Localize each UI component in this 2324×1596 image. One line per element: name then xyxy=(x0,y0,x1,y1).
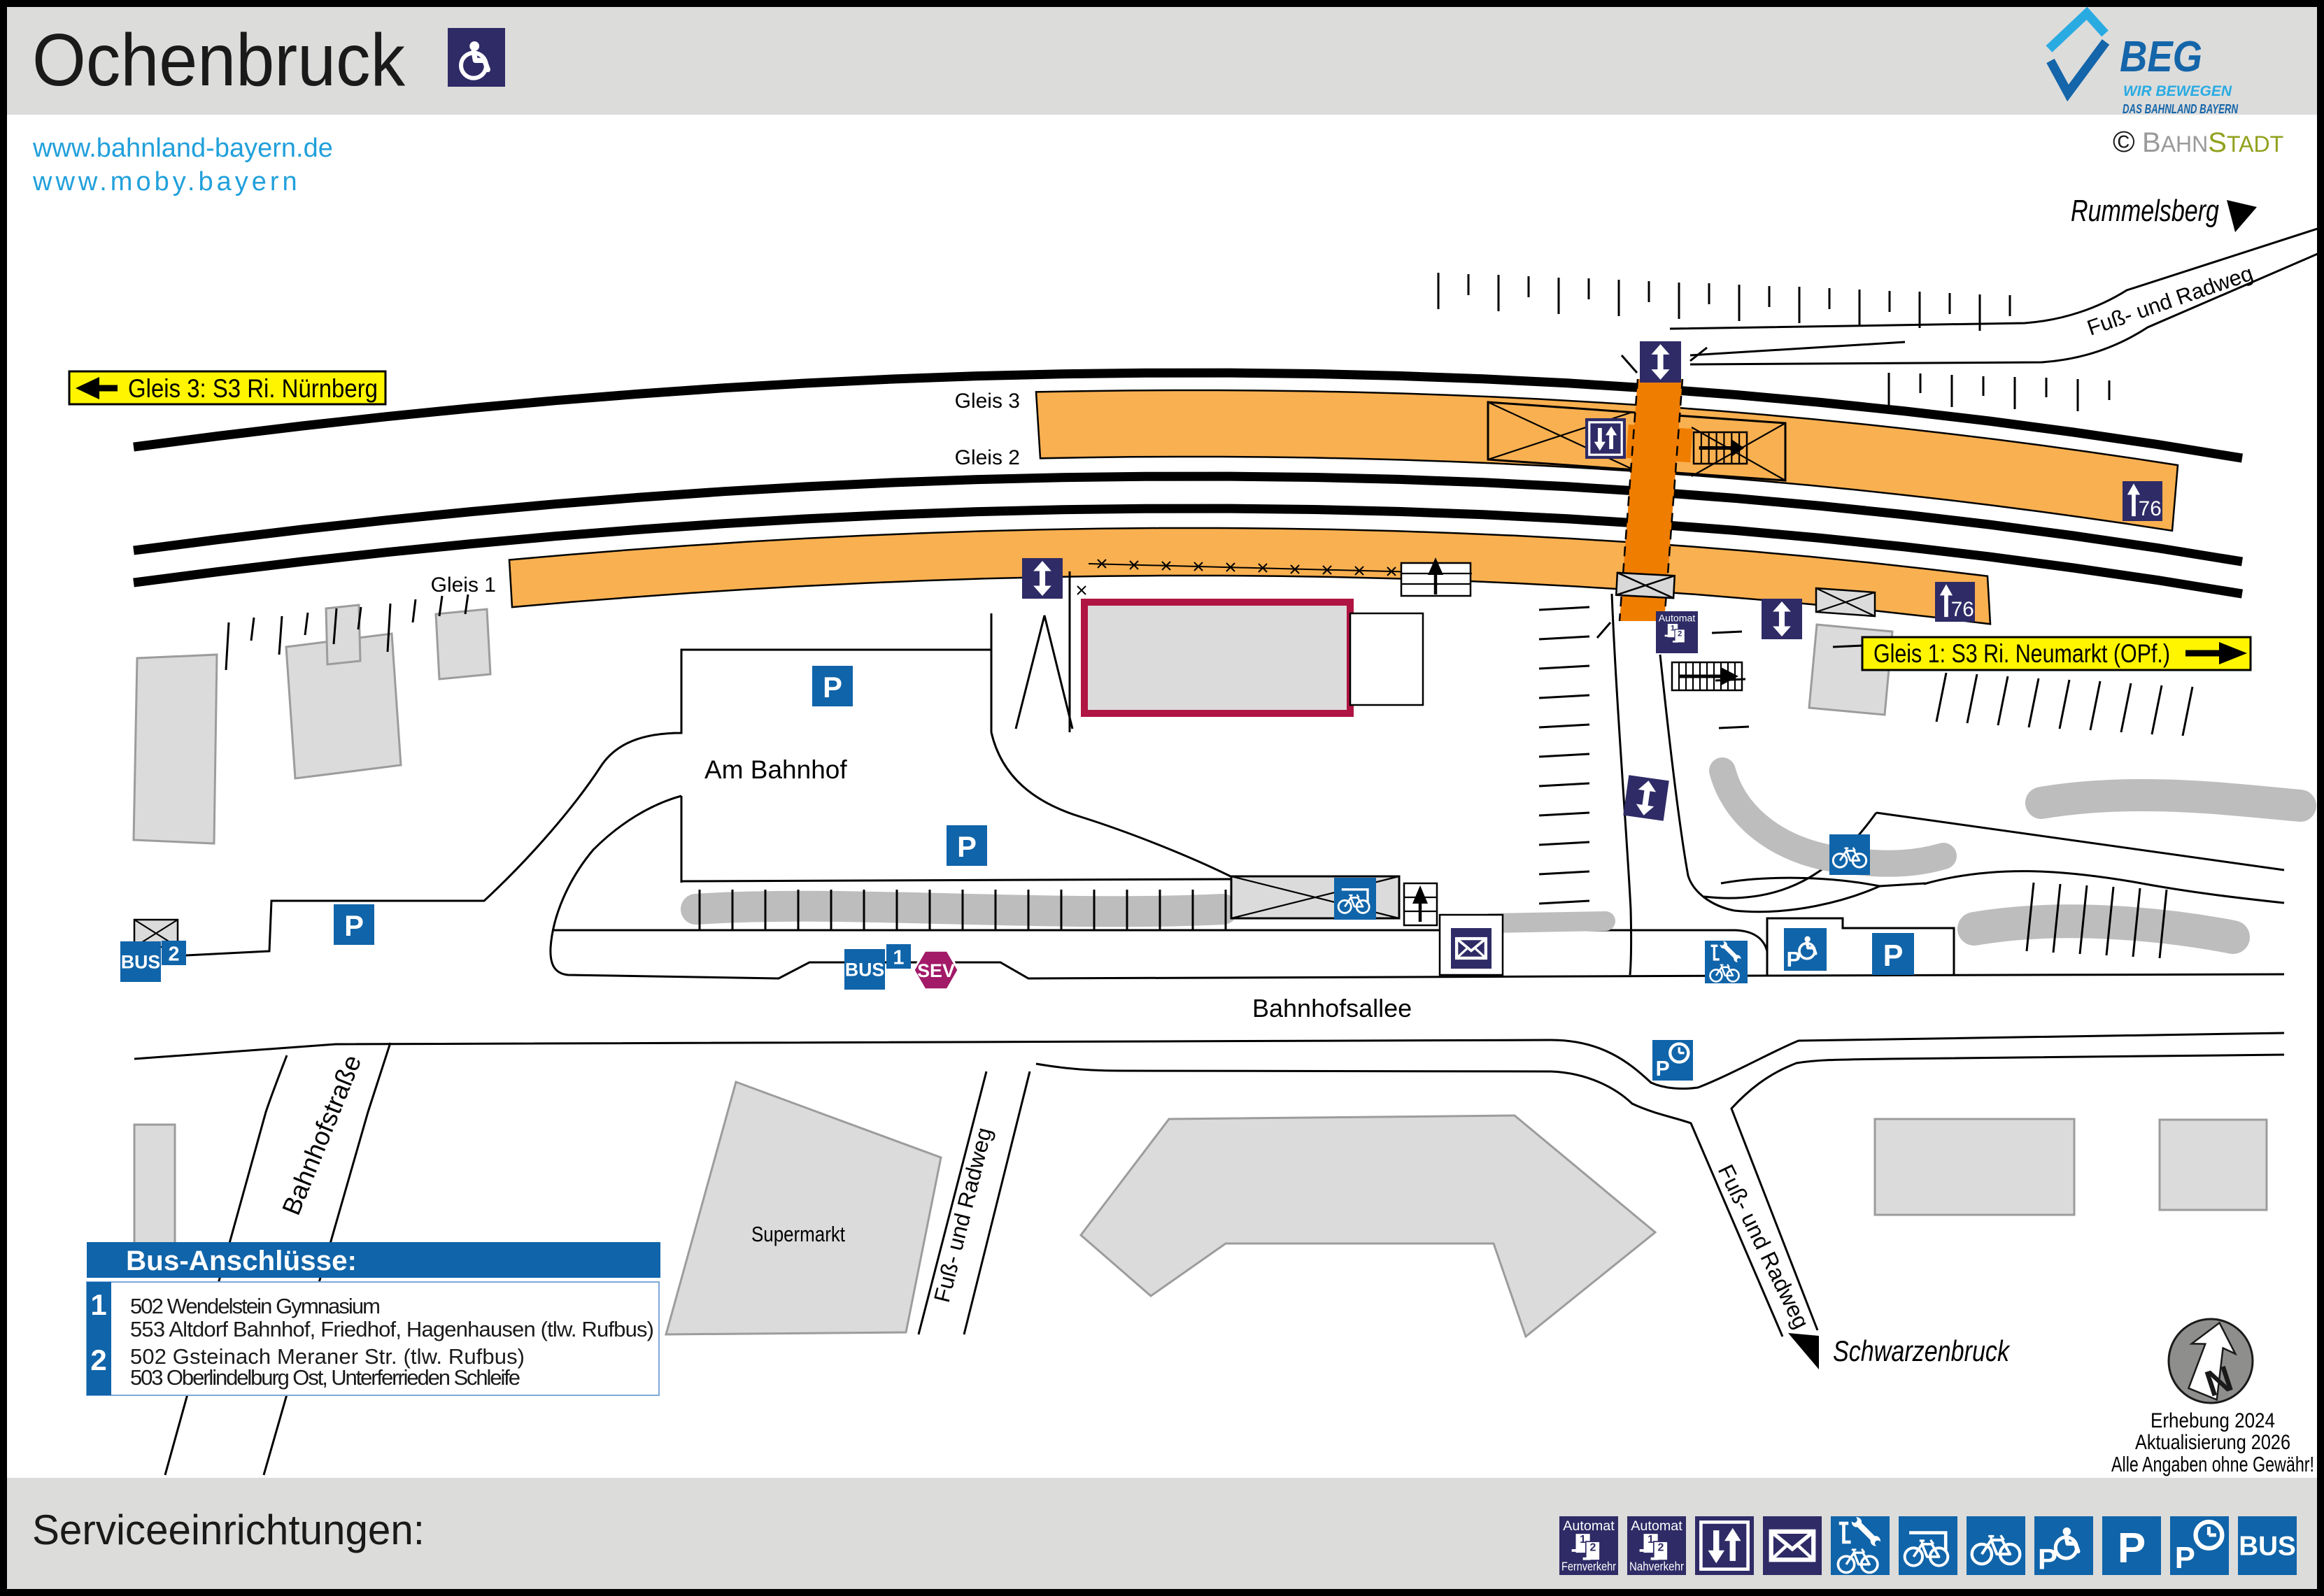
svg-text:1: 1 xyxy=(90,1288,106,1321)
svg-text:SEV: SEV xyxy=(917,960,955,981)
svg-text:P: P xyxy=(344,909,364,942)
svg-text:Bus-Anschlüsse:: Bus-Anschlüsse: xyxy=(126,1246,357,1276)
svg-text:Gleis 3: S3 Ri. Nürnberg: Gleis 3: S3 Ri. Nürnberg xyxy=(128,374,378,403)
svg-text:©: © xyxy=(2113,125,2135,159)
svg-text:Ochenbruck: Ochenbruck xyxy=(32,19,406,101)
svg-text:BAHNSTADT: BAHNSTADT xyxy=(2142,127,2283,158)
svg-text:Rummelsberg: Rummelsberg xyxy=(2071,194,2219,228)
svg-text:Nahverkehr: Nahverkehr xyxy=(1629,1559,1684,1573)
svg-text:Automat: Automat xyxy=(1563,1518,1615,1534)
svg-text:DAS BAHNLAND BAYERN: DAS BAHNLAND BAYERN xyxy=(2123,102,2239,116)
svg-text:P: P xyxy=(2175,1541,2195,1575)
svg-text:2: 2 xyxy=(1589,1542,1596,1554)
svg-text:Alle Angaben ohne Gewähr!: Alle Angaben ohne Gewähr! xyxy=(2111,1452,2314,1476)
svg-text:76: 76 xyxy=(1951,598,1974,621)
svg-text:Schwarzenbruck: Schwarzenbruck xyxy=(1833,1334,2011,1367)
svg-text:Fernverkehr: Fernverkehr xyxy=(1561,1559,1616,1573)
svg-text:Automat: Automat xyxy=(1631,1518,1682,1534)
svg-text:1: 1 xyxy=(893,947,905,969)
svg-text:2: 2 xyxy=(90,1344,106,1376)
svg-text:Bahnhofsallee: Bahnhofsallee xyxy=(1252,994,1412,1023)
svg-text:P: P xyxy=(1883,939,1904,973)
svg-text:503 Oberlindelburg Ost, Unterf: 503 Oberlindelburg Ost, Unterferrieden S… xyxy=(130,1365,520,1390)
svg-text:Gleis 1: Gleis 1 xyxy=(431,573,496,597)
svg-text:Am Bahnhof: Am Bahnhof xyxy=(704,755,847,784)
svg-text:Gleis 3: Gleis 3 xyxy=(955,390,1020,413)
svg-text:Automat: Automat xyxy=(1659,612,1696,623)
svg-text:1: 1 xyxy=(1671,624,1675,632)
svg-text:www.bahnland-bayern.de: www.bahnland-bayern.de xyxy=(32,134,333,163)
svg-text:BUS: BUS xyxy=(845,959,884,980)
svg-text:WIR BEWEGEN: WIR BEWEGEN xyxy=(2123,83,2232,99)
svg-text:2: 2 xyxy=(169,943,180,966)
svg-text:P: P xyxy=(957,830,977,863)
svg-text:Aktualisierung 2026: Aktualisierung 2026 xyxy=(2135,1431,2290,1454)
svg-text:502 Wendelstein Gymnasium: 502 Wendelstein Gymnasium xyxy=(130,1294,381,1318)
svg-text:1: 1 xyxy=(1648,1534,1654,1546)
svg-text:BUS: BUS xyxy=(2239,1531,2296,1561)
svg-text:www.moby.bayern: www.moby.bayern xyxy=(32,167,301,197)
svg-text:553 Altdorf Bahnhof, Friedhof,: 553 Altdorf Bahnhof, Friedhof, Hagenhaus… xyxy=(130,1317,654,1341)
svg-text:2: 2 xyxy=(1657,1542,1664,1554)
svg-text:2: 2 xyxy=(1678,629,1682,638)
svg-text:Supermarkt: Supermarkt xyxy=(751,1222,845,1246)
svg-text:Gleis 1: S3 Ri. Neumarkt (OPf.: Gleis 1: S3 Ri. Neumarkt (OPf.) xyxy=(1873,639,2170,668)
svg-text:P: P xyxy=(1656,1057,1670,1081)
svg-text:Erhebung 2024: Erhebung 2024 xyxy=(2151,1409,2275,1432)
svg-text:Gleis 2: Gleis 2 xyxy=(955,446,1020,469)
svg-text:BEG: BEG xyxy=(2120,33,2202,81)
svg-text:P: P xyxy=(2118,1524,2146,1572)
svg-text:1: 1 xyxy=(1580,1534,1586,1546)
svg-text:P: P xyxy=(823,671,842,704)
svg-text:Serviceeinrichtungen:: Serviceeinrichtungen: xyxy=(32,1506,425,1553)
svg-text:76: 76 xyxy=(2139,497,2162,520)
svg-text:BUS: BUS xyxy=(121,951,160,972)
